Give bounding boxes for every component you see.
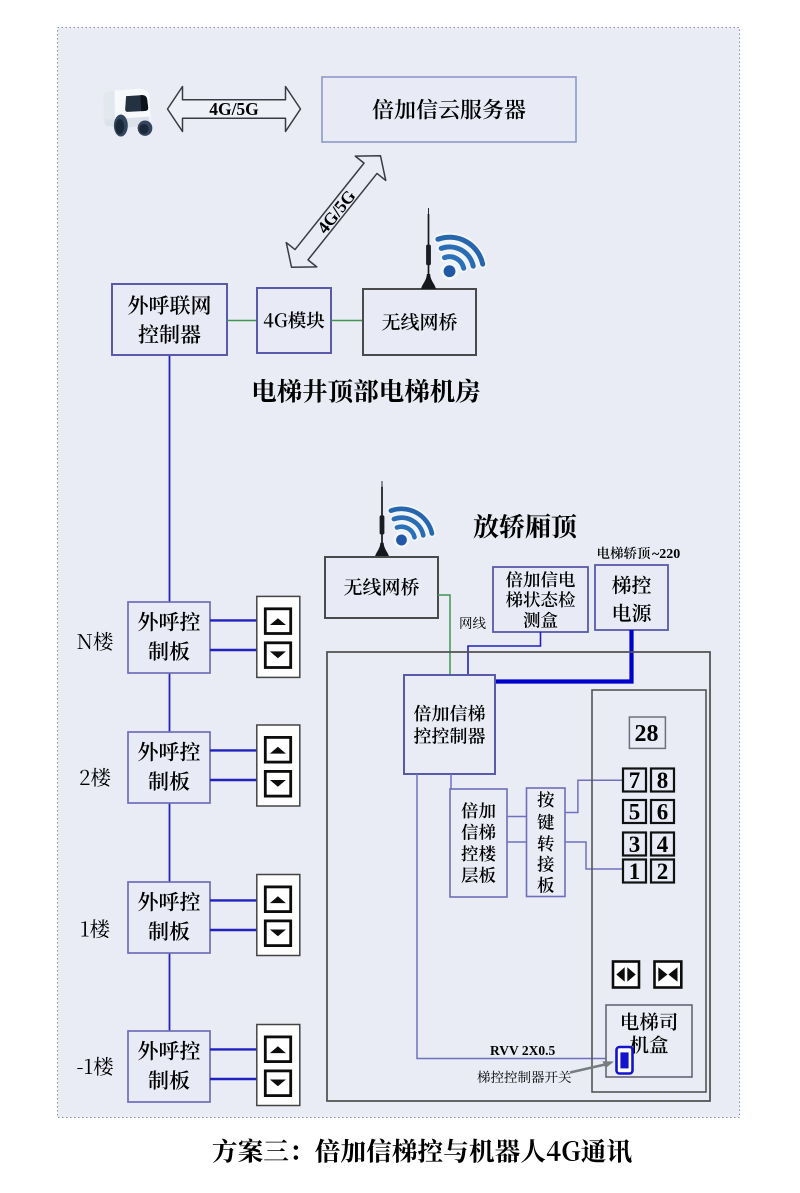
- svg-text:5: 5: [629, 800, 641, 825]
- svg-text:3: 3: [629, 832, 641, 857]
- svg-text:4G/5G: 4G/5G: [209, 99, 259, 119]
- svg-text:6: 6: [657, 800, 669, 825]
- svg-text:7: 7: [629, 768, 641, 793]
- svg-text:2: 2: [657, 859, 669, 884]
- svg-text:RVV 2X0.5: RVV 2X0.5: [490, 1043, 556, 1058]
- svg-text:~220: ~220: [652, 547, 680, 562]
- svg-text:4: 4: [657, 832, 669, 857]
- svg-text:28: 28: [635, 721, 659, 747]
- svg-text:8: 8: [657, 768, 669, 793]
- svg-text:1: 1: [629, 859, 641, 884]
